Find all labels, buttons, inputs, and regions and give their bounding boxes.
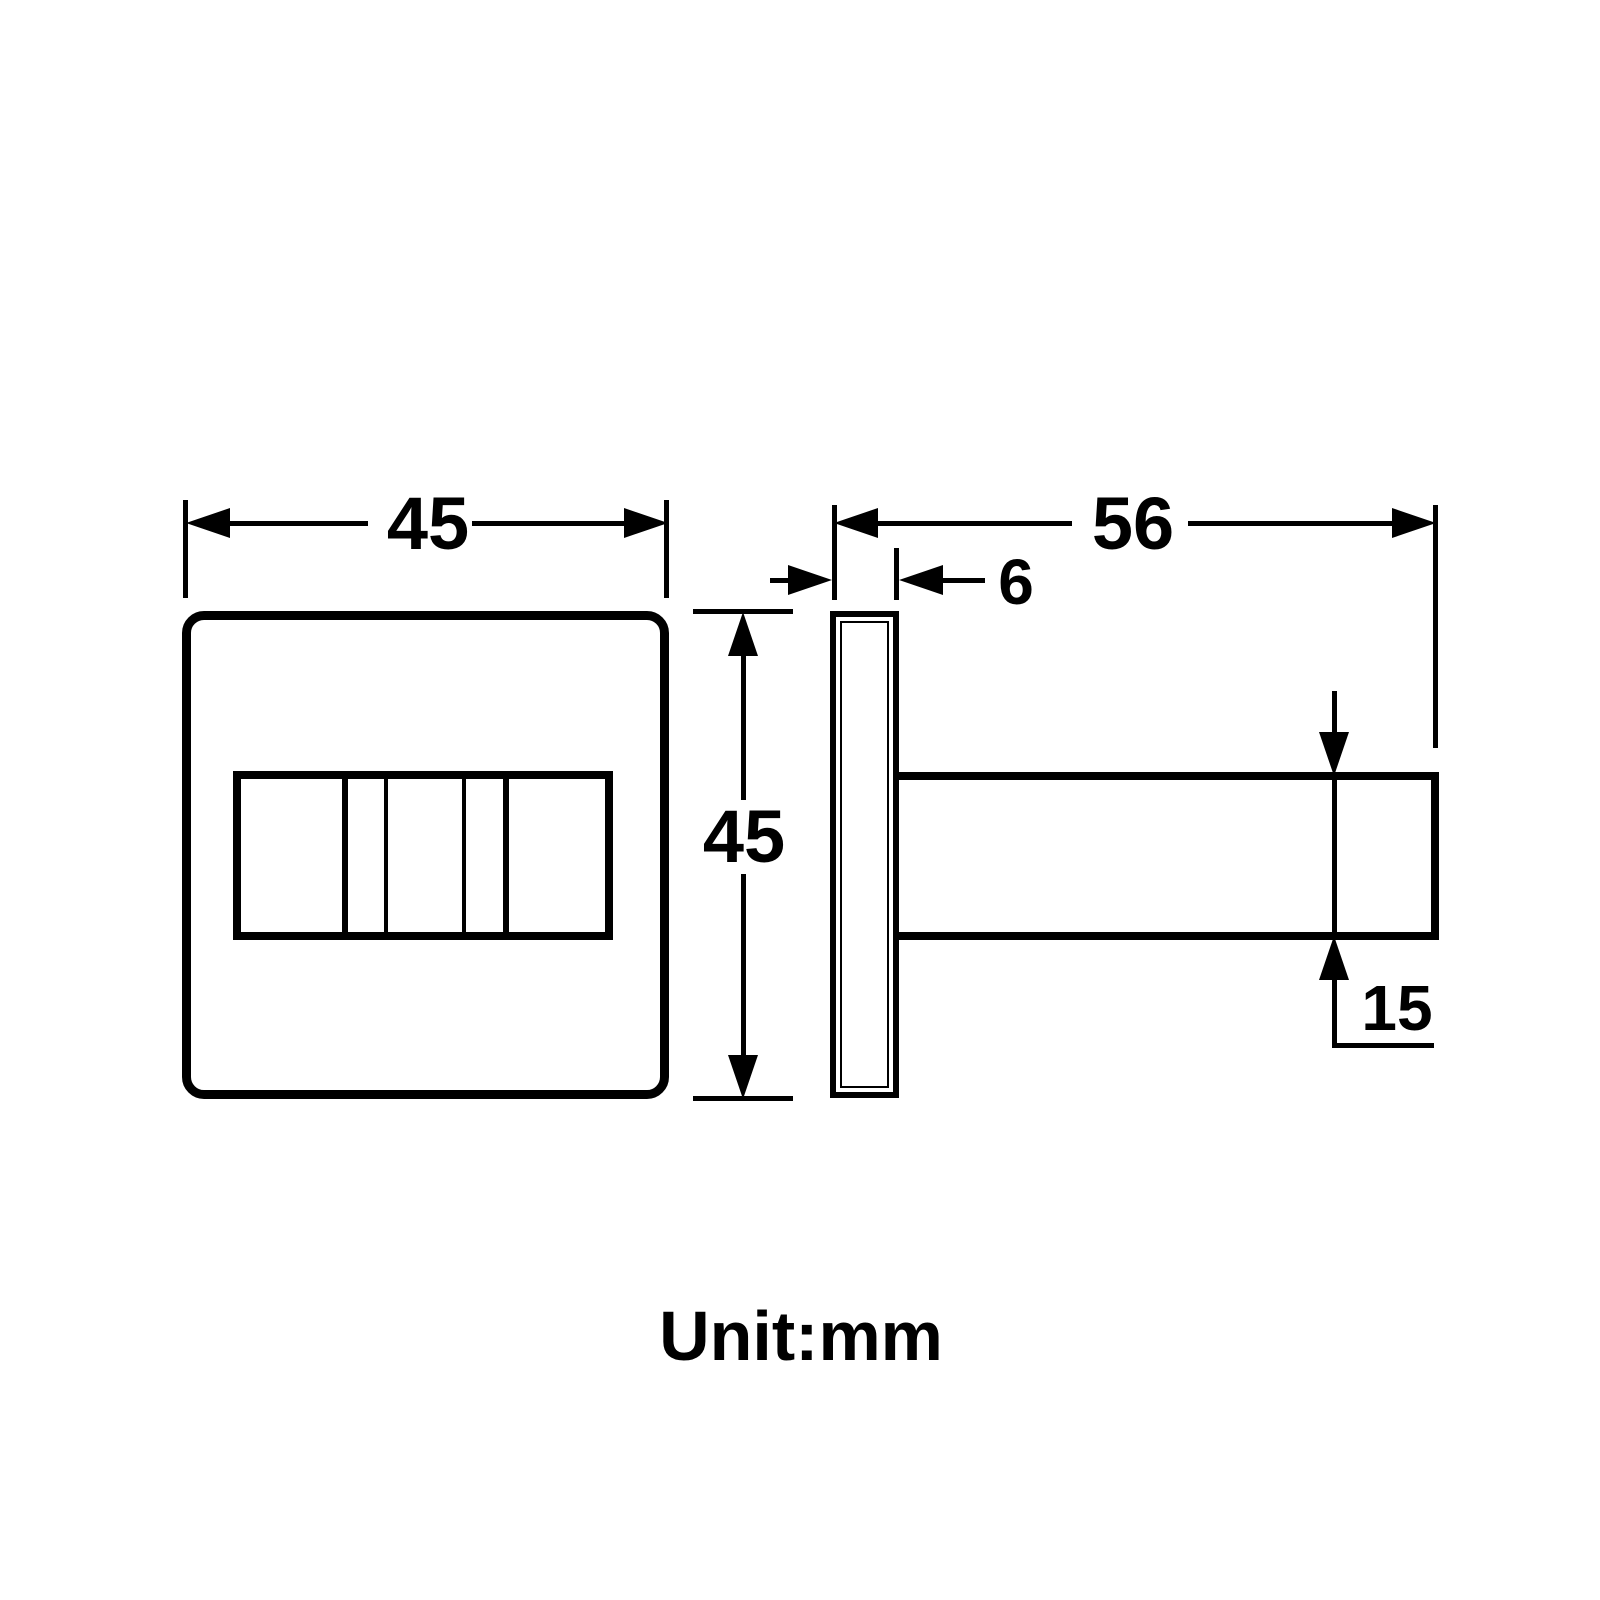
dim-side-length-line-left (878, 521, 1072, 526)
dim-thickness-arrow-right-icon (788, 565, 832, 595)
dim-side-length-arrow-right-icon (1392, 508, 1436, 538)
dim-front-height-arrow-up-icon (728, 612, 758, 656)
dim-front-height-arrow-down-icon (728, 1055, 758, 1099)
dim-side-length-label: 56 (1092, 487, 1174, 561)
side-arm-end-edge (1431, 772, 1439, 940)
side-plate-inner-line (840, 621, 889, 1088)
dim-front-width-line-left (230, 521, 368, 526)
dim-front-width-arrow-right-icon (624, 508, 668, 538)
dim-front-height-label: 45 (703, 800, 785, 874)
unit-label: Unit:mm (659, 1301, 943, 1371)
dim-front-width-line-right (472, 521, 624, 526)
dim-arm-height-arrow-down-icon (1319, 732, 1349, 776)
dim-thickness-tail-right (943, 578, 985, 583)
dim-side-length-line-right (1188, 521, 1392, 526)
front-slot-outline (233, 771, 613, 940)
front-slot-divider-3 (462, 779, 466, 932)
dim-front-width-arrow-left-icon (186, 508, 230, 538)
front-slot-divider-4 (503, 779, 509, 932)
side-arm-top-edge (897, 772, 1439, 780)
dim-arm-height-arrow-up-icon (1319, 936, 1349, 980)
dim-thickness-tail-left (770, 578, 790, 583)
dim-side-length-arrow-left-icon (834, 508, 878, 538)
side-arm-bottom-edge (897, 932, 1439, 940)
dim-arm-height-label: 15 (1361, 976, 1432, 1040)
front-slot-divider-2 (384, 779, 388, 932)
dim-front-height-line-lower (741, 874, 746, 1055)
dim-thickness-arrow-left-icon (899, 565, 943, 595)
technical-drawing-canvas: 45 45 56 6 15 Unit:mm (0, 0, 1600, 1600)
dim-front-width-label: 45 (387, 487, 469, 561)
front-slot-divider-1 (342, 779, 348, 932)
dim-arm-height-line-through (1332, 780, 1337, 932)
dim-arm-height-line-upper (1332, 691, 1337, 733)
dim-arm-height-line-lower (1332, 980, 1337, 1047)
dim-front-height-line-upper (741, 656, 746, 800)
dim-thickness-label: 6 (998, 550, 1034, 614)
dim-side-length-extension-right (1433, 505, 1438, 748)
